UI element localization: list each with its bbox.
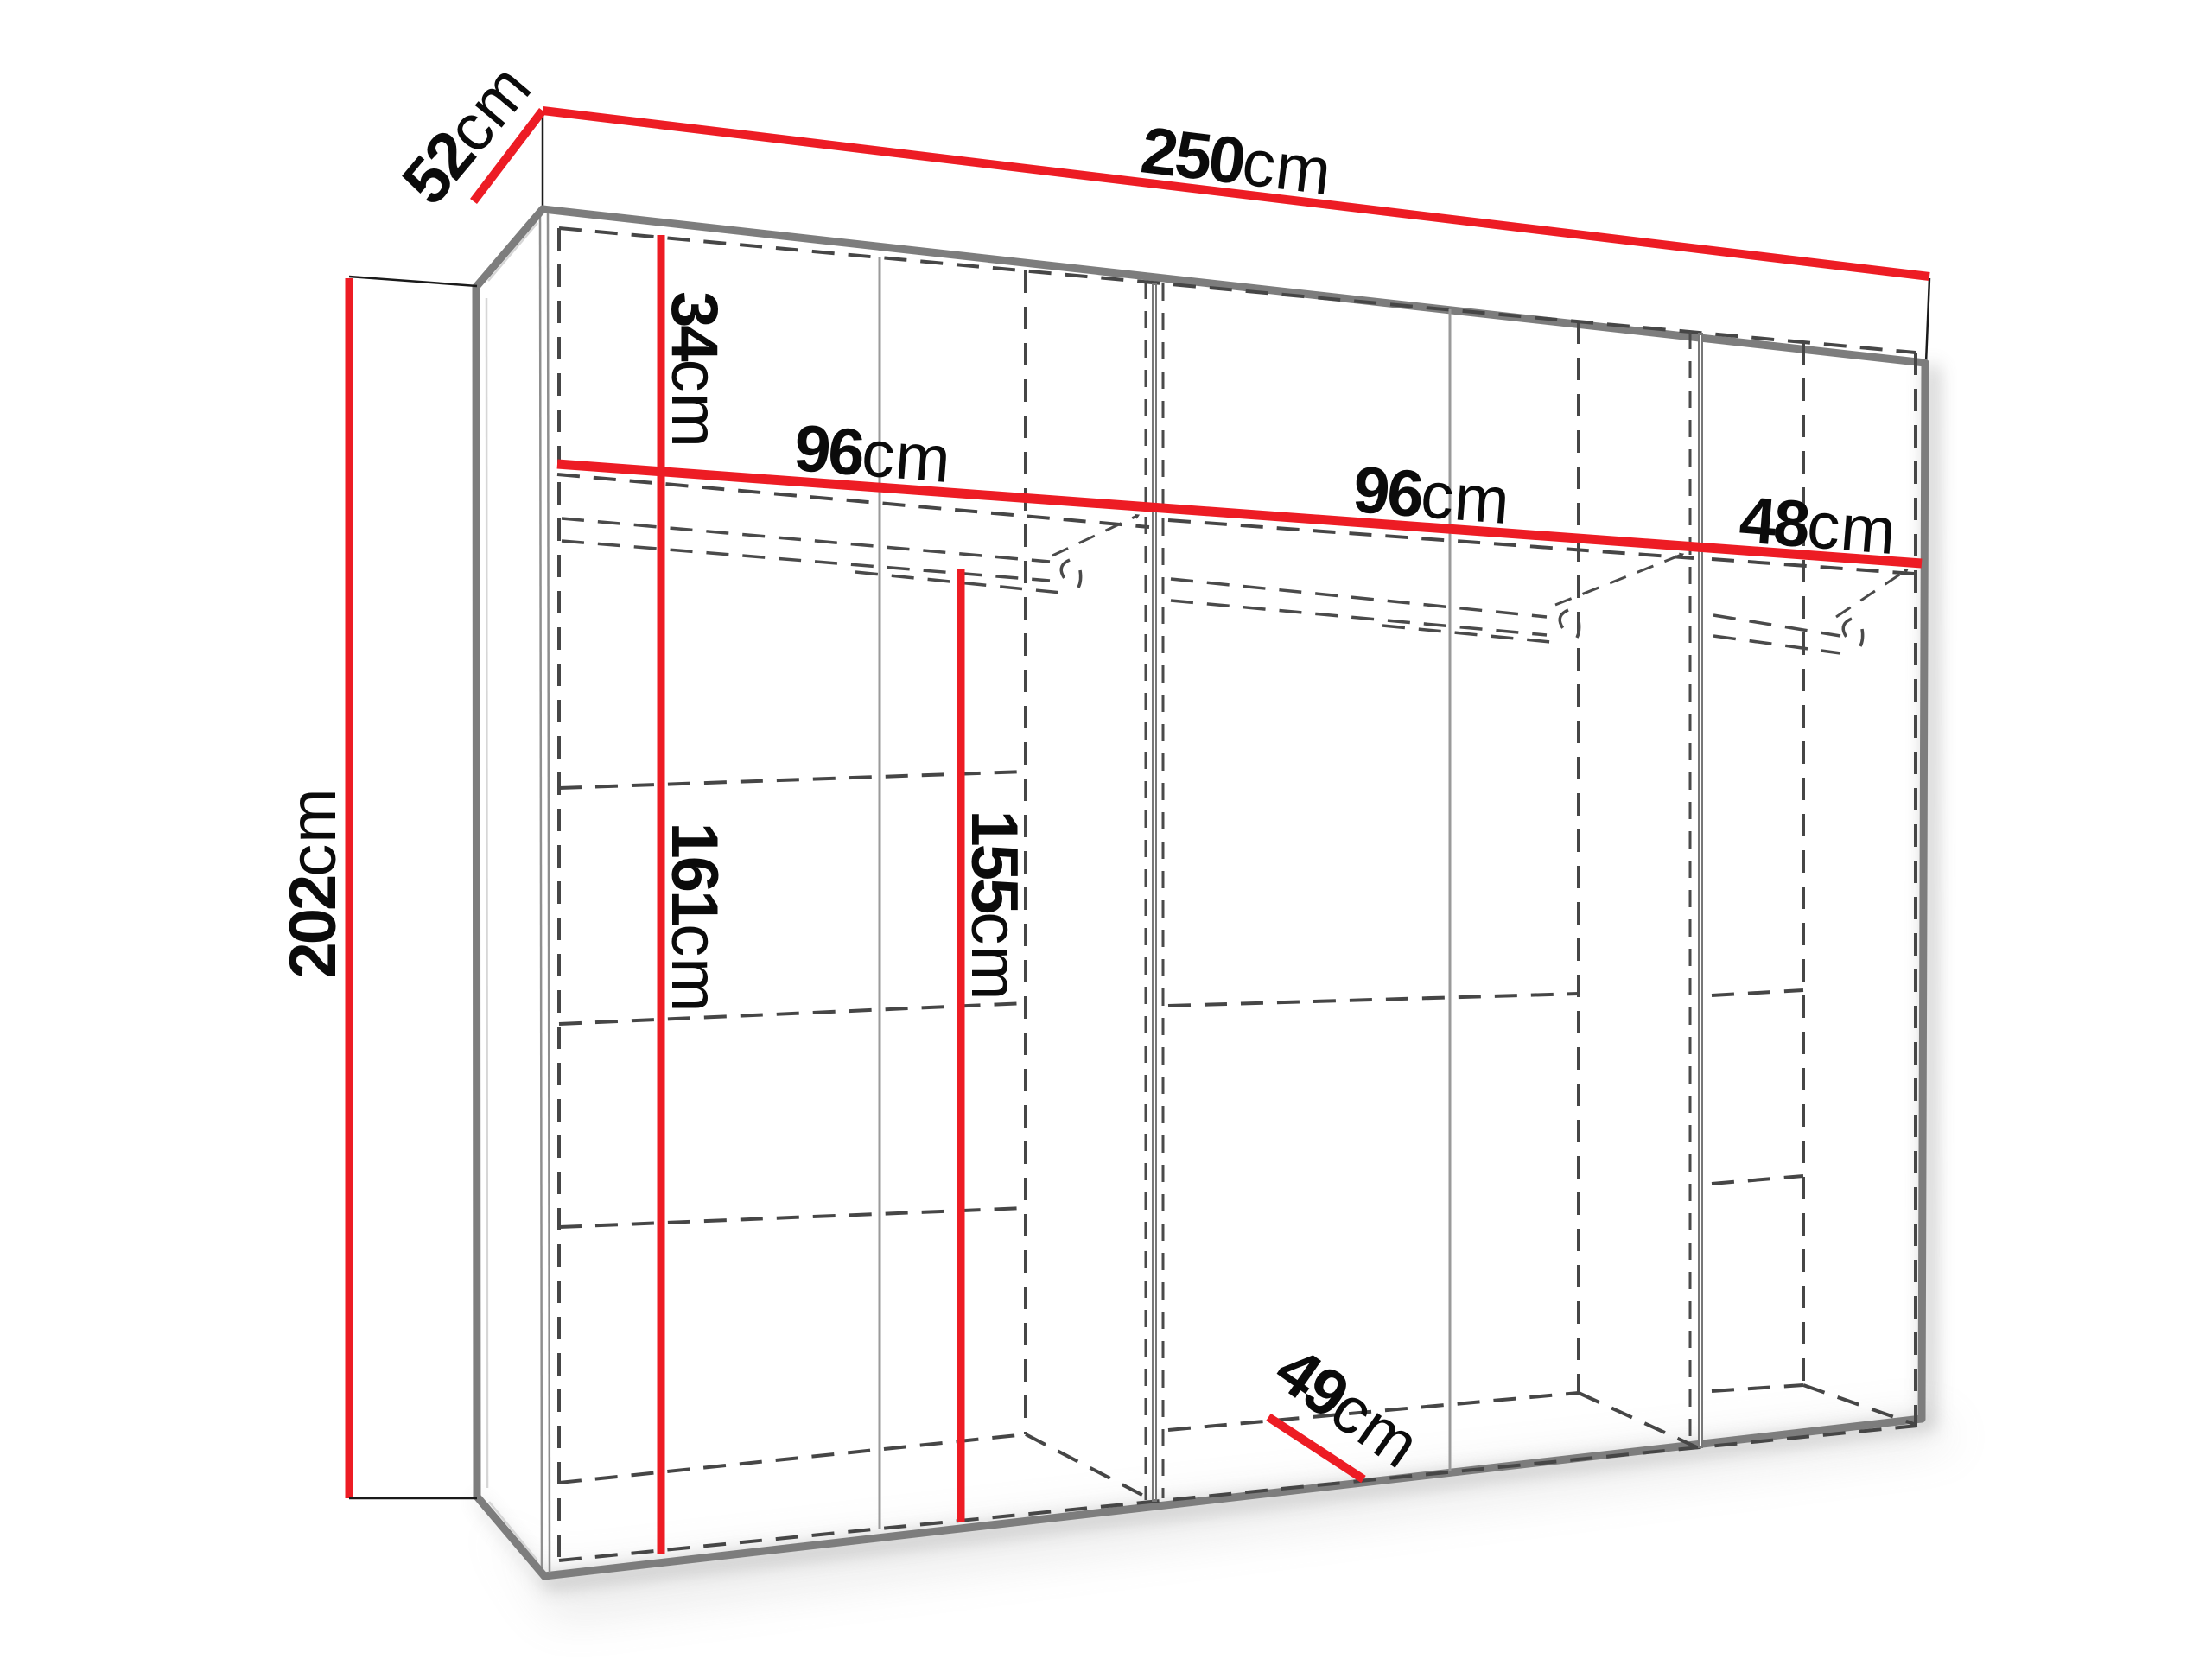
shelf-lines	[557, 474, 1914, 1227]
side-highlight-vertical	[486, 298, 487, 1488]
shelf-s3-a	[1712, 990, 1803, 995]
height-label: 202cm	[276, 787, 350, 978]
rod-section1	[562, 516, 1137, 593]
dimension-lines	[349, 111, 1929, 1554]
interior-depth-label: 49cm	[1262, 1332, 1433, 1483]
rod-hook-3	[1843, 619, 1862, 646]
right-section-width-label: 48cm	[1737, 483, 1899, 569]
rod-leader-3	[1836, 570, 1906, 617]
front-right-edge	[1922, 363, 1925, 1419]
floor-diagonal-2	[1579, 1393, 1699, 1448]
side-top-edge	[476, 209, 543, 287]
rod-hook-1	[1061, 560, 1080, 588]
cabinet-outline	[540, 111, 1929, 1576]
side-outer-edge	[476, 287, 477, 1497]
rod-leader-2	[1555, 555, 1681, 605]
total-width-label: 250cm	[1137, 113, 1336, 209]
front-top-edge	[543, 209, 1925, 363]
dimension-labels: 250cm 52cm 202cm 34cm 96cm 96cm 48cm 161…	[276, 51, 1899, 1483]
front-left-edge-outer	[540, 211, 542, 1574]
left-interior-height-label: 161cm	[658, 822, 731, 1013]
shelf-s1-b	[559, 1003, 1026, 1024]
left-side-panel	[476, 209, 544, 1576]
floor-diagonal-1	[1026, 1434, 1155, 1502]
side-highlight-top	[488, 223, 537, 281]
hanging-rods	[562, 516, 1906, 653]
front-left-edge-inner	[548, 213, 550, 1573]
wardrobe-dimension-diagram: 250cm 52cm 202cm 34cm 96cm 96cm 48cm 161…	[0, 0, 2212, 1659]
side-bottom-edge	[477, 1497, 544, 1576]
hanging-space-height-label: 155cm	[957, 810, 1031, 1001]
shelf-s1-a	[559, 772, 1026, 788]
front-bottom-edge	[544, 1419, 1922, 1576]
shelf-s1-c	[559, 1208, 1026, 1227]
top-shelf-height-label: 34cm	[658, 291, 731, 448]
mid-section-width-label: 96cm	[1351, 453, 1513, 538]
shelf-s3-b	[1712, 1176, 1803, 1184]
top-face-right-edge	[1926, 278, 1929, 363]
rod-leader-1	[1052, 516, 1137, 556]
rod-hook-2	[1560, 610, 1579, 638]
shelf-s2	[1168, 994, 1579, 1006]
dim-height-tick-top	[349, 276, 477, 286]
rod-section2	[1171, 555, 1681, 643]
rod-section3	[1713, 570, 1906, 653]
floor-back-edge-1	[559, 1434, 1026, 1483]
dim-shelf-width-line	[557, 464, 1922, 563]
left-section-width-label: 96cm	[791, 411, 954, 497]
floor-back-edge-3	[1712, 1385, 1803, 1391]
hidden-edges	[559, 228, 1917, 1560]
